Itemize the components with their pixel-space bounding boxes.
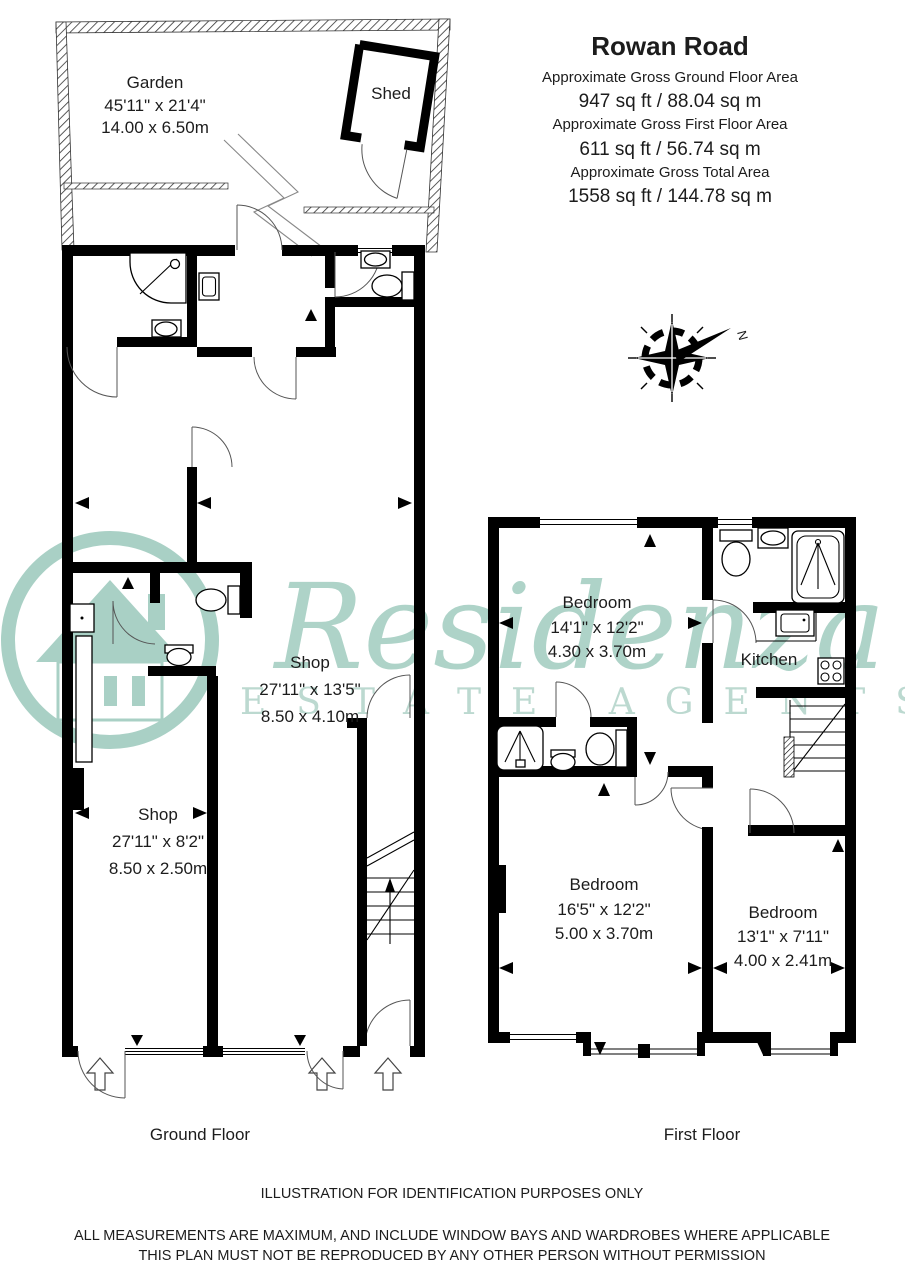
toilet-icon [586,733,614,765]
entrance-arrow-icon [87,1058,401,1090]
shed-outline [337,45,435,201]
shop-rear-dims-metric: 8.50 x 4.10m [261,707,359,726]
area-value-total: 1558 sq ft / 144.78 sq m [568,186,772,207]
bedroom-rear-dims-imperial: 13'1" x 7'11" [737,927,829,946]
bedroom-rear-label: Bedroom [749,903,818,922]
toilet-icon [720,530,752,541]
shop-front-dims-metric: 8.50 x 2.50m [109,859,207,878]
shop-front-dims-imperial: 27'11" x 8'2" [112,832,204,851]
area-label-ground: Approximate Gross Ground Floor Area [542,69,799,86]
first-floor-caption: First Floor [664,1125,741,1144]
bedroom-front-dims-metric: 4.30 x 3.70m [548,642,646,661]
shed-label: Shed [371,84,411,103]
area-value-ground: 947 sq ft / 88.04 sq m [579,91,762,112]
area-label-first: Approximate Gross First Floor Area [552,116,788,133]
shop-rear-label: Shop [290,653,330,672]
compass-rose-icon: N [628,314,751,402]
shop-rear-dims-imperial: 27'11" x 13'5" [259,680,360,699]
kitchen-label: Kitchen [741,650,798,669]
floorplan-page: Residenza ESTATE AGENTS Rowan Road Appro… [0,0,905,1280]
shower-bath-icon [792,531,844,603]
bedroom-middle-dims-imperial: 16'5" x 12'2" [557,900,650,919]
toilet-icon [196,589,226,611]
floorplan-drawing: Residenza ESTATE AGENTS Rowan Road Appro… [0,0,905,1280]
counter-icon [76,636,92,762]
disclaimer-line1: ILLUSTRATION FOR IDENTIFICATION PURPOSES… [261,1186,644,1202]
compass-north-label: N [734,329,751,342]
shop-front-label: Shop [138,805,178,824]
ground-floor-caption: Ground Floor [150,1125,250,1144]
shower-icon [497,726,543,770]
toilet-icon [372,275,402,297]
bedroom-front-dims-imperial: 14'1" x 12'2" [550,618,643,637]
bedroom-rear-dims-metric: 4.00 x 2.41m [734,951,832,970]
watermark-house-icon [36,580,184,720]
page-title: Rowan Road [591,31,748,61]
bedroom-middle-label: Bedroom [570,875,639,894]
garden-dims-imperial: 45'11" x 21'4" [104,96,205,115]
header: Rowan Road Approximate Gross Ground Floo… [542,31,799,207]
disclaimer-line2: ALL MEASUREMENTS ARE MAXIMUM, AND INCLUD… [74,1228,830,1244]
hob-icon [818,658,844,684]
bedroom-middle-dims-metric: 5.00 x 3.70m [555,924,653,943]
disclaimer-line3: THIS PLAN MUST NOT BE REPRODUCED BY ANY … [138,1248,765,1264]
bedroom-front-label: Bedroom [563,593,632,612]
garden-label: Garden [127,73,184,92]
area-label-total: Approximate Gross Total Area [571,164,771,181]
garden-dims-metric: 14.00 x 6.50m [101,118,209,137]
area-value-first: 611 sq ft / 56.74 sq m [579,139,760,160]
